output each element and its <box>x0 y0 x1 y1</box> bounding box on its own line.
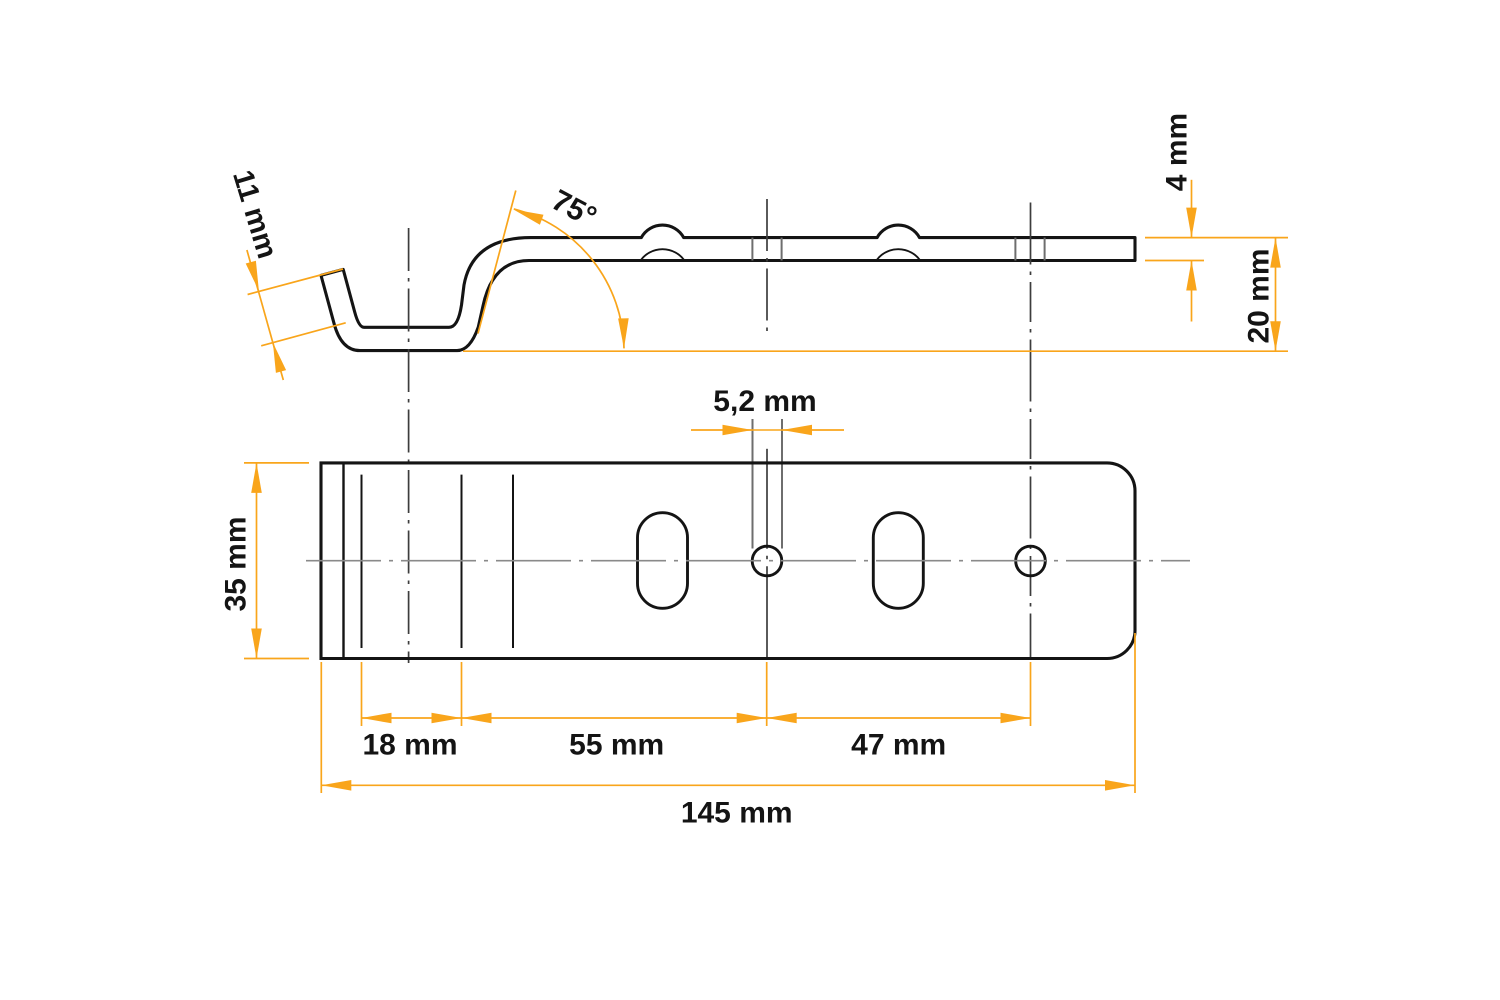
svg-text:47 mm: 47 mm <box>851 729 946 762</box>
svg-text:20 mm: 20 mm <box>1243 248 1276 343</box>
svg-text:145 mm: 145 mm <box>681 797 793 830</box>
svg-text:5,2 mm: 5,2 mm <box>713 385 816 418</box>
svg-text:4 mm: 4 mm <box>1161 113 1194 191</box>
svg-text:18 mm: 18 mm <box>362 729 457 762</box>
svg-text:35 mm: 35 mm <box>220 516 253 611</box>
svg-text:55 mm: 55 mm <box>569 729 664 762</box>
